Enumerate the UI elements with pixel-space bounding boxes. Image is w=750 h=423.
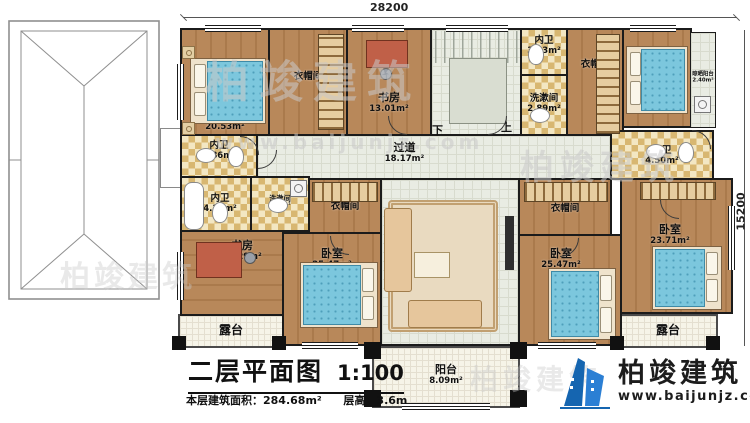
logo-building-icon xyxy=(558,352,612,410)
bathtub xyxy=(184,182,204,230)
washing-machine xyxy=(694,96,711,113)
nightstand xyxy=(182,46,195,59)
desk xyxy=(196,242,242,278)
toilet xyxy=(212,202,228,223)
chair xyxy=(380,68,392,80)
plan-scale: 1:100 xyxy=(337,361,404,385)
nightstand xyxy=(182,122,195,135)
floor-height-value: 3.6m xyxy=(376,394,407,407)
desk xyxy=(366,40,408,68)
stair-landing xyxy=(449,58,507,124)
sofa xyxy=(408,300,482,328)
room-label: 晾晒阳台2.40m² xyxy=(692,72,714,84)
company-logo: 柏竣建筑 www.baijunjz.com xyxy=(558,352,750,410)
room-corridor: 过道18.17m² xyxy=(256,134,612,180)
wardrobe xyxy=(318,34,344,130)
column xyxy=(510,342,527,359)
column xyxy=(272,336,286,350)
tv-cabinet xyxy=(505,216,514,270)
garage-roof-plan xyxy=(8,20,166,302)
column xyxy=(510,390,527,407)
room-label: 过道18.17m² xyxy=(385,142,424,164)
room-terrace-right: 露台 xyxy=(618,314,718,348)
logo-name: 柏竣建筑 xyxy=(618,360,750,387)
room-label: 露台 xyxy=(180,324,282,338)
plan-title: 二层平面图 xyxy=(188,352,323,388)
column xyxy=(172,336,186,350)
bed xyxy=(652,246,722,310)
floor-area-value: 284.68m² xyxy=(263,394,322,407)
window xyxy=(205,25,261,32)
floor-height-label: 层高： xyxy=(343,394,376,407)
window xyxy=(402,403,490,410)
chair xyxy=(244,252,256,264)
bed xyxy=(190,58,266,124)
sink xyxy=(268,198,288,213)
titleblock-stats: 本层建筑面积：284.68m² 层高：3.6m xyxy=(186,392,407,408)
window xyxy=(630,25,676,32)
room-drying-balcony: 晾晒阳台2.40m² xyxy=(690,32,716,128)
room-wash-top: 洗漱间2.89m² xyxy=(520,74,568,138)
dimension-line-top xyxy=(183,17,737,18)
dimension-top-value: 28200 xyxy=(370,1,408,14)
wardrobe xyxy=(312,182,378,202)
window xyxy=(177,252,184,300)
wardrobe xyxy=(524,182,608,202)
coffee-table xyxy=(414,252,450,278)
stair-down-label: 下 xyxy=(432,122,443,138)
dimension-right-value: 15200 xyxy=(735,192,748,230)
logo-url: www.baijunjz.com xyxy=(618,390,750,403)
room-label: 卧室23.71m² xyxy=(609,224,731,246)
bed xyxy=(300,262,378,328)
room-label: 衣帽间 xyxy=(520,204,610,215)
room-terrace-left: 露台 xyxy=(178,314,284,348)
washing-machine xyxy=(290,180,307,197)
titleblock: 二层平面图 1:100 xyxy=(188,352,404,394)
wardrobe xyxy=(596,34,620,134)
column xyxy=(706,336,720,350)
wall-bay xyxy=(160,128,182,188)
floor-area-label: 本层建筑面积： xyxy=(186,394,263,407)
column xyxy=(610,336,624,350)
sink xyxy=(196,148,216,163)
room-label: 衣帽间 xyxy=(310,202,380,213)
sink xyxy=(646,144,666,159)
bed xyxy=(626,46,688,114)
window xyxy=(446,25,508,32)
room-label: 露台 xyxy=(620,324,716,338)
window xyxy=(302,342,358,349)
window xyxy=(177,64,184,120)
window xyxy=(352,25,404,32)
sofa xyxy=(384,208,412,292)
window xyxy=(538,342,596,349)
floorplan-canvas: 28200 15200 露台 露台 阳台8.09m² 卧室20.53m² 衣帽间 xyxy=(0,0,750,423)
toilet xyxy=(528,44,544,65)
stair-up-label: 上 xyxy=(501,119,512,135)
sink xyxy=(530,108,550,123)
dimension-line-right xyxy=(744,30,745,346)
wardrobe xyxy=(640,182,716,200)
bed xyxy=(548,268,616,340)
room-label: 书房13.01m² xyxy=(348,92,430,114)
